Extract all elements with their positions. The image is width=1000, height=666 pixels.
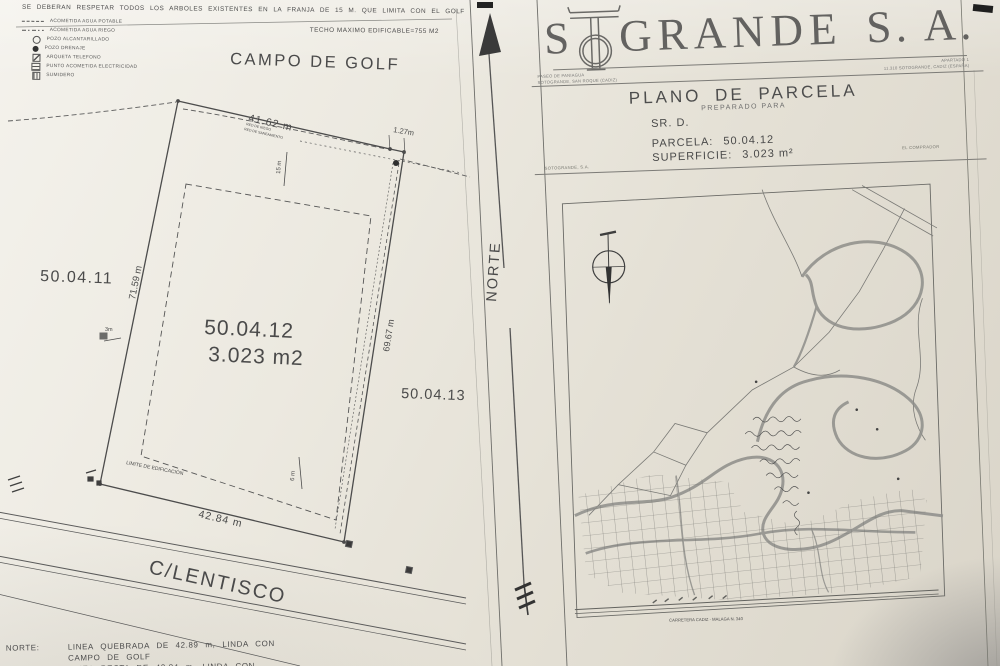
location-map: CARRETERA CADIZ - MALAGA N. 340 xyxy=(552,178,960,646)
setback-left-label: 3m xyxy=(105,327,113,333)
map-parcel-grid xyxy=(578,468,929,603)
setback-top-label: 15 m xyxy=(276,160,283,174)
plot-labels: 41.62 m 1.27m 71.59 m 69.67 m 42.84 m 15… xyxy=(40,50,466,608)
client-line: SR. D. xyxy=(651,117,690,130)
north-label: NORTE xyxy=(484,241,504,302)
superficie-row: SUPERFICIE:3.023 m² xyxy=(652,147,794,164)
neighbor-right-label: 50.04.13 xyxy=(401,386,466,404)
superficie-value: 3.023 m² xyxy=(742,147,794,161)
dim-top-small: 1.27m xyxy=(393,125,415,137)
parcel-area-label: 3.023 m2 xyxy=(208,343,304,370)
dim-bottom: 42.84 m xyxy=(197,508,244,530)
dash-dot-line-icon xyxy=(22,29,44,31)
circle-filled-icon xyxy=(33,45,39,51)
company-name-rest: GRANDE xyxy=(618,0,844,67)
utility-dashed-lines xyxy=(8,102,470,177)
map-road-caption: CARRETERA CADIZ - MALAGA N. 340 xyxy=(669,616,744,623)
legend-item: SUMIDERO xyxy=(21,71,137,81)
parcel-number-label: 50.04.12 xyxy=(204,316,295,343)
square-hatch-icon xyxy=(31,62,40,70)
circle-outline-icon xyxy=(33,35,41,43)
max-roof-note: TECHO MAXIMO EDIFICABLE=755 M2 xyxy=(310,27,439,35)
drainage-well-symbol xyxy=(393,160,399,166)
dim-left: 71.59 m xyxy=(127,265,145,301)
dim-right: 69.67 m xyxy=(381,319,396,353)
letterhead: S GRANDE S. A. PASEO DE PANIAGUA xyxy=(535,0,991,178)
map-roads-thin xyxy=(582,184,943,515)
signer-right: EL COMPRADOR xyxy=(902,144,940,150)
setback-bottom-label: 6 m xyxy=(290,471,297,482)
north-arrow xyxy=(479,13,535,615)
building-limit-label: LIMITE DE EDIFICACIÓN xyxy=(126,459,185,477)
street-name-label: C/LENTISCO xyxy=(147,556,288,608)
compass-icon xyxy=(592,232,626,306)
company-name-suffix: S. A. xyxy=(865,0,976,58)
dashed-line-icon xyxy=(22,21,44,22)
golf-area-label: CAMPO DE GOLF xyxy=(230,50,401,74)
registration-mark xyxy=(477,2,493,8)
scanned-parcel-plan: NORTE 41.62 m 1.27m 71.59 m 69.67 m 42.8… xyxy=(0,0,1000,666)
neighbor-left-label: 50.04.11 xyxy=(40,268,114,288)
parcela-value: 50.04.12 xyxy=(723,134,774,148)
boundary-label-north: NORTE: xyxy=(6,642,68,654)
utility-entry-marks xyxy=(8,470,101,492)
superficie-label: SUPERFICIE: xyxy=(652,149,732,164)
square-diagonal-icon xyxy=(32,53,40,61)
location-map-drawing: CARRETERA CADIZ - MALAGA N. 340 xyxy=(552,178,960,646)
parcela-label: PARCELA: xyxy=(652,136,714,150)
symbol-legend: ACOMETIDA AGUA POTABLE ACOMETIDA AGUA RI… xyxy=(21,17,138,81)
signer-left: SOTOGRANDE, S.A. xyxy=(545,164,590,171)
square-grid-icon xyxy=(32,71,40,79)
